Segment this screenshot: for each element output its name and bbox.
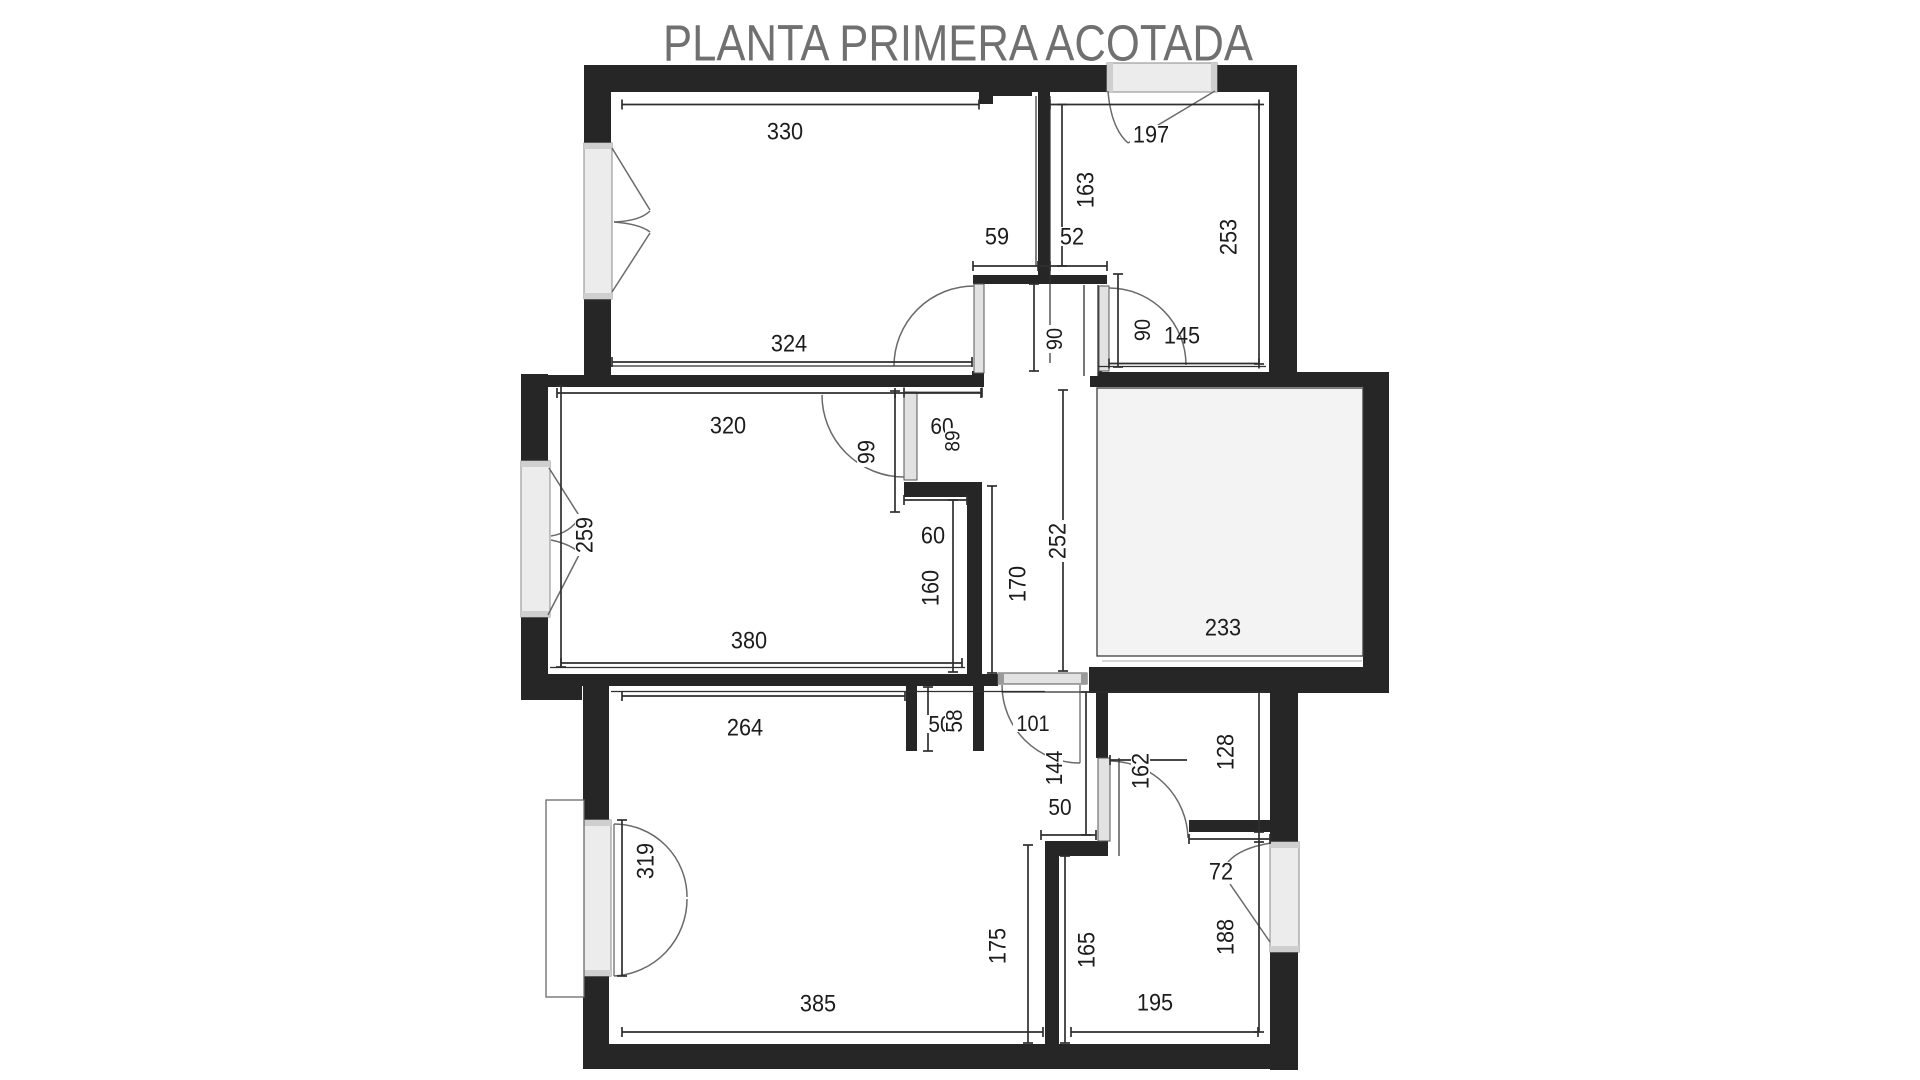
- svg-text:60: 60: [921, 521, 945, 548]
- svg-text:89: 89: [941, 430, 964, 451]
- svg-text:195: 195: [1137, 988, 1173, 1015]
- svg-text:145: 145: [1164, 321, 1200, 348]
- svg-text:90: 90: [1043, 328, 1067, 350]
- svg-text:59: 59: [985, 222, 1009, 249]
- svg-text:319: 319: [631, 843, 658, 879]
- svg-text:330: 330: [767, 117, 803, 144]
- svg-text:252: 252: [1043, 523, 1070, 559]
- svg-text:PLANTA PRIMERA ACOTADA: PLANTA PRIMERA ACOTADA: [663, 16, 1253, 73]
- svg-text:170: 170: [1003, 566, 1030, 602]
- svg-text:259: 259: [570, 517, 597, 553]
- svg-text:320: 320: [710, 411, 746, 438]
- svg-text:175: 175: [983, 928, 1010, 964]
- svg-text:163: 163: [1071, 172, 1098, 208]
- svg-text:128: 128: [1211, 734, 1238, 770]
- svg-text:160: 160: [916, 570, 943, 606]
- svg-text:253: 253: [1214, 219, 1241, 255]
- svg-text:264: 264: [727, 713, 764, 740]
- svg-text:101: 101: [1016, 712, 1049, 736]
- svg-text:165: 165: [1072, 932, 1099, 968]
- svg-text:52: 52: [1060, 222, 1084, 249]
- svg-text:380: 380: [731, 626, 767, 653]
- svg-text:233: 233: [1205, 613, 1241, 640]
- svg-text:58: 58: [941, 709, 967, 732]
- svg-text:90: 90: [1131, 319, 1155, 341]
- svg-text:144: 144: [1041, 751, 1067, 786]
- svg-text:162: 162: [1126, 753, 1153, 789]
- svg-text:50: 50: [1048, 794, 1071, 820]
- svg-text:385: 385: [800, 989, 836, 1016]
- svg-text:188: 188: [1211, 919, 1238, 955]
- svg-text:197: 197: [1133, 120, 1169, 147]
- svg-text:72: 72: [1209, 857, 1233, 884]
- svg-text:99: 99: [852, 440, 879, 464]
- svg-text:324: 324: [771, 329, 808, 356]
